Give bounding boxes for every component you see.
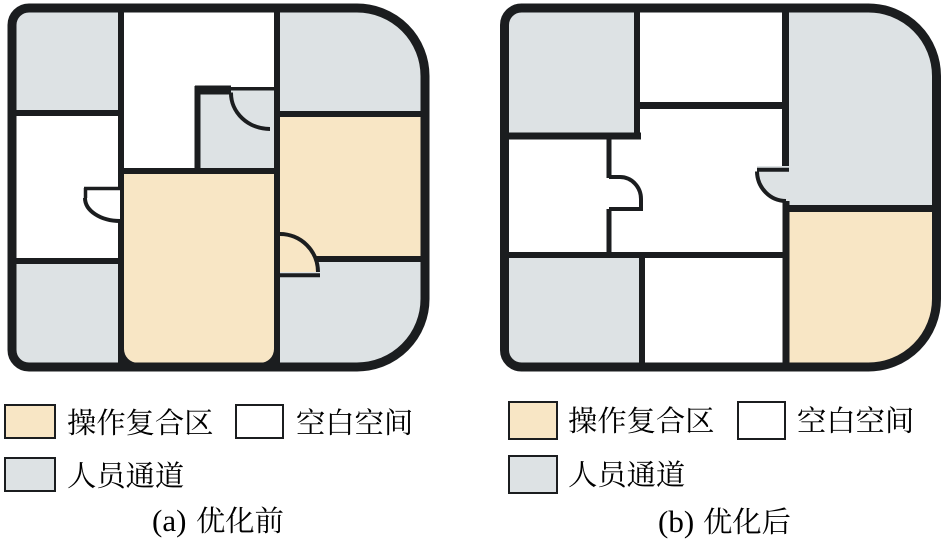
svg-text:(a): (a)	[152, 503, 186, 538]
svg-text:(b): (b)	[658, 504, 694, 539]
